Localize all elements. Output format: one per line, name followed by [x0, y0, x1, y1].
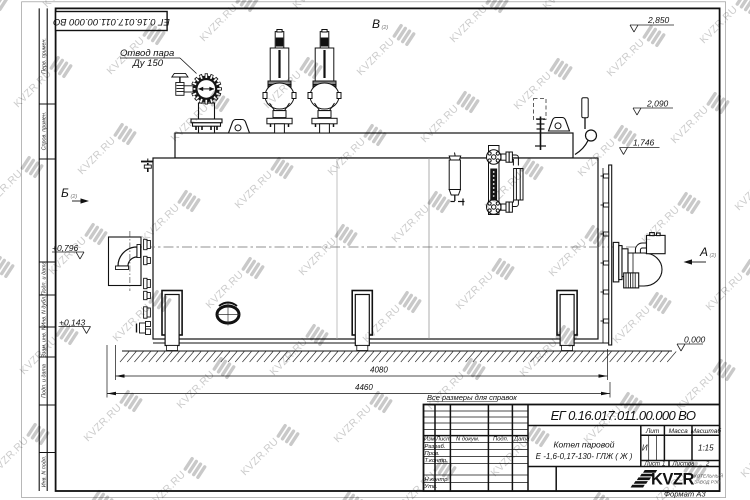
- svg-text:В: В: [372, 17, 380, 31]
- svg-text:Подп. и дата: Подп. и дата: [41, 364, 47, 398]
- svg-text:1:15: 1:15: [698, 444, 714, 453]
- svg-text:Лист: Лист: [644, 461, 660, 467]
- svg-text:N докум.: N докум.: [456, 437, 479, 443]
- svg-text:4460: 4460: [355, 383, 373, 392]
- svg-text:ЕГ 0.16.017.011.00.000 ВО: ЕГ 0.16.017.011.00.000 ВО: [551, 408, 696, 423]
- svg-text:2,090: 2,090: [646, 99, 669, 109]
- svg-text:Лит: Лит: [645, 428, 660, 435]
- svg-text:Е -1,6-0,17-130- ГЛЖ ( Ж ): Е -1,6-0,17-130- ГЛЖ ( Ж ): [536, 452, 633, 461]
- svg-text:1,746: 1,746: [633, 138, 655, 148]
- svg-text:Инв. N дубл.: Инв. N дубл.: [41, 295, 47, 326]
- svg-text:Масса: Масса: [669, 428, 689, 435]
- svg-text:Пров.: Пров.: [425, 451, 440, 457]
- svg-text:2,850: 2,850: [647, 15, 670, 25]
- svg-text:Масштаб: Масштаб: [691, 427, 722, 435]
- svg-text:А: А: [699, 245, 708, 259]
- svg-text:И: И: [642, 444, 648, 453]
- svg-text:Подп. и дата: Подп. и дата: [41, 262, 47, 296]
- svg-text:Разраб.: Разраб.: [425, 444, 446, 450]
- svg-text:(2): (2): [71, 194, 78, 200]
- svg-text:Подп.: Подп.: [493, 437, 508, 443]
- svg-text:(2): (2): [382, 25, 389, 31]
- svg-text:Б: Б: [61, 186, 69, 200]
- svg-text:(2): (2): [710, 253, 717, 259]
- svg-text:4080: 4080: [370, 366, 388, 375]
- svg-text:Ду 150: Ду 150: [132, 58, 164, 69]
- svg-text:Спров. примен.: Спров. примен.: [41, 112, 47, 151]
- svg-text:1: 1: [662, 461, 665, 467]
- svg-text:0,000: 0,000: [684, 335, 706, 345]
- svg-text:2: 2: [705, 461, 710, 467]
- svg-text:Лист: Лист: [435, 437, 451, 443]
- svg-text:Изм: Изм: [424, 437, 435, 443]
- svg-text:Инв. N подл.: Инв. N подл.: [41, 456, 47, 488]
